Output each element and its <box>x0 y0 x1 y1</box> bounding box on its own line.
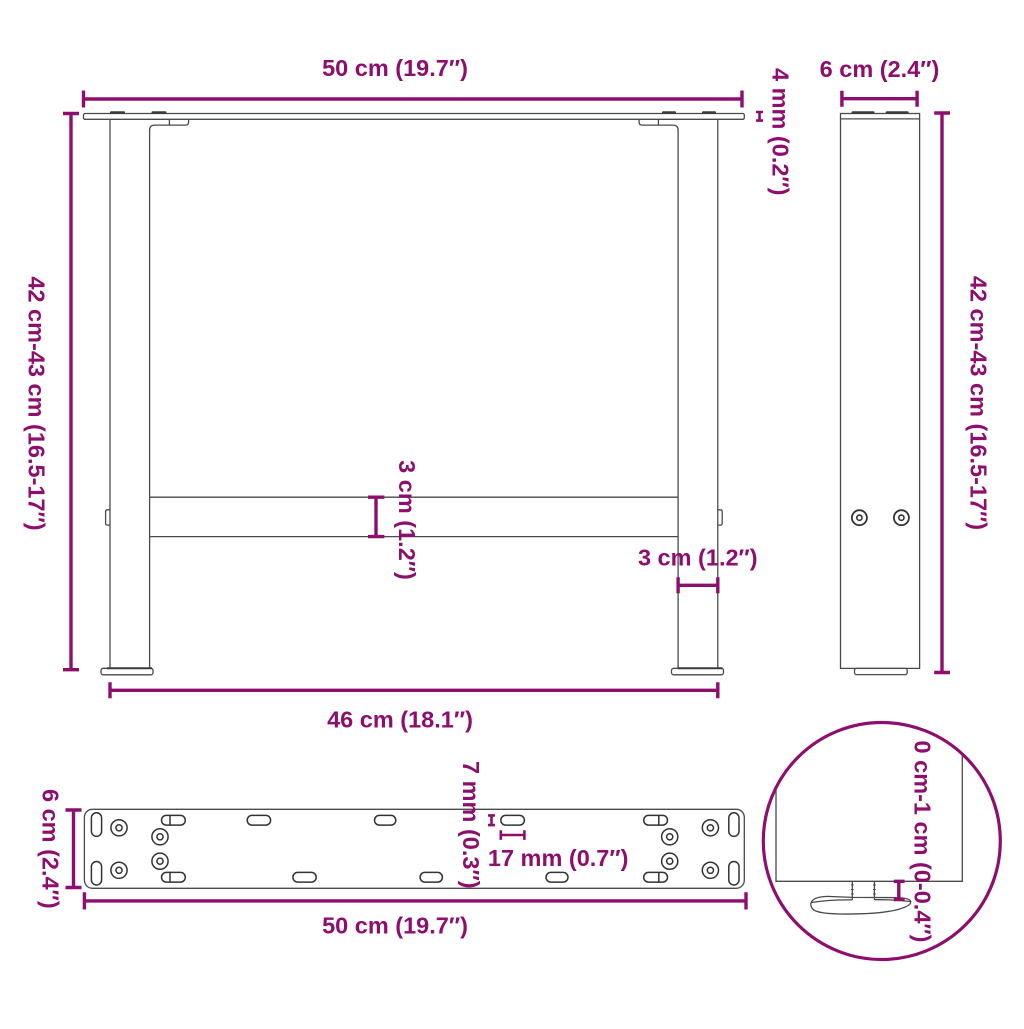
svg-text:3 cm (1.2″): 3 cm (1.2″) <box>638 545 758 571</box>
svg-text:42 cm-43 cm (16.5-17″): 42 cm-43 cm (16.5-17″) <box>24 276 50 530</box>
svg-text:4 mm (0.2″): 4 mm (0.2″) <box>768 68 794 196</box>
svg-text:0 cm-1 cm (0-0.4″): 0 cm-1 cm (0-0.4″) <box>910 741 936 943</box>
svg-text:6 cm (2.4″): 6 cm (2.4″) <box>38 789 64 909</box>
svg-text:17 mm (0.7″): 17 mm (0.7″) <box>488 845 629 871</box>
svg-text:46 cm (18.1″): 46 cm (18.1″) <box>327 707 473 733</box>
svg-text:3 cm (1.2″): 3 cm (1.2″) <box>394 460 420 580</box>
svg-text:6 cm (2.4″): 6 cm (2.4″) <box>820 56 940 82</box>
svg-text:7 mm (0.3″): 7 mm (0.3″) <box>458 761 484 889</box>
svg-text:42 cm-43 cm (16.5-17″): 42 cm-43 cm (16.5-17″) <box>966 276 992 530</box>
svg-text:50 cm (19.7″): 50 cm (19.7″) <box>322 913 468 939</box>
svg-text:50 cm (19.7″): 50 cm (19.7″) <box>322 55 468 81</box>
